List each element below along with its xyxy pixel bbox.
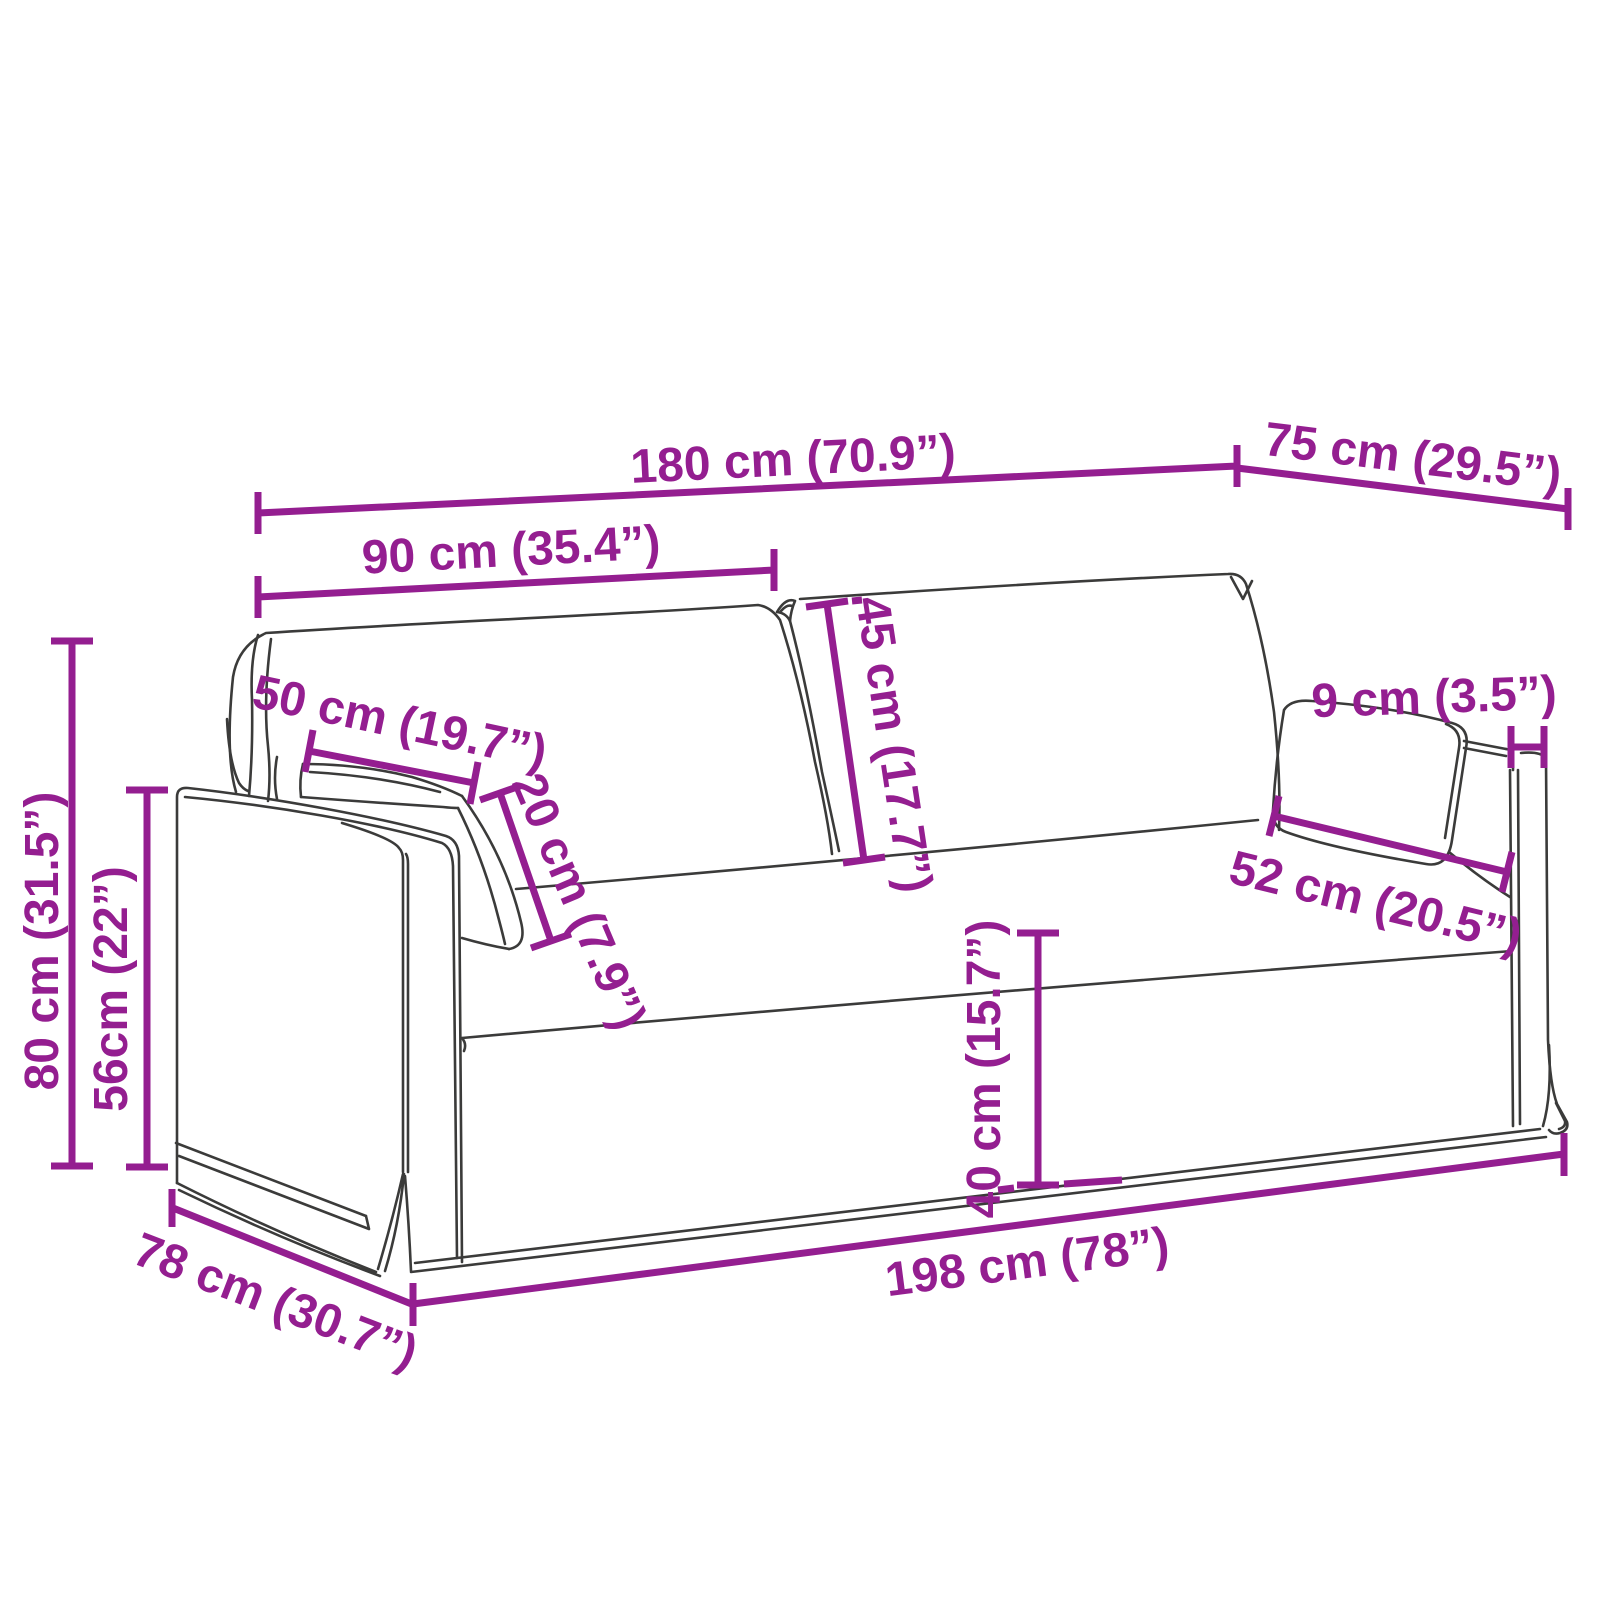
svg-text:198 cm (78”): 198 cm (78”) (882, 1218, 1172, 1307)
svg-text:56cm (22”): 56cm (22”) (85, 866, 138, 1111)
svg-text:9 cm (3.5”): 9 cm (3.5”) (1310, 667, 1557, 729)
svg-text:90 cm (35.4”): 90 cm (35.4”) (360, 516, 661, 585)
svg-text:52 cm (20.5”): 52 cm (20.5”) (1224, 841, 1527, 963)
svg-text:80 cm (31.5”): 80 cm (31.5”) (16, 792, 69, 1091)
svg-text:40 cm (15.7”): 40 cm (15.7”) (958, 920, 1011, 1219)
svg-text:20 cm (7.9”): 20 cm (7.9”) (501, 766, 656, 1037)
svg-text:50 cm (19.7”): 50 cm (19.7”) (248, 665, 551, 779)
